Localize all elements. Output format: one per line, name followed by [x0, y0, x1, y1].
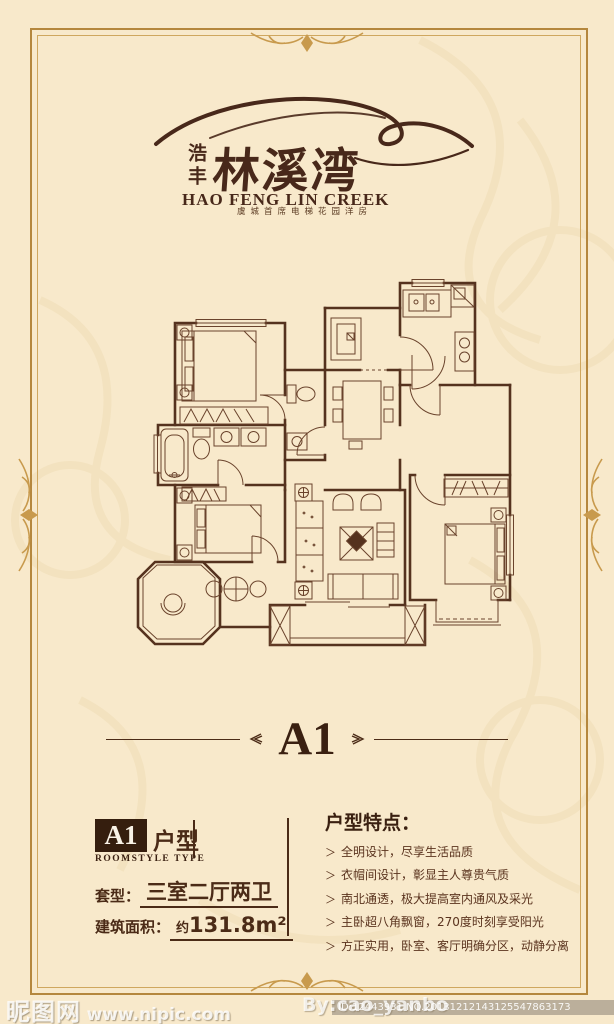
feature-item: ＞南北通透，极大提高室内通风及采光: [325, 892, 575, 906]
feature-marker: ＞: [325, 940, 336, 953]
unit-badge: A1: [95, 819, 147, 852]
feature-text: 衣帽间设计，彰显主人尊贵气质: [341, 868, 509, 882]
plan-title: A1: [278, 716, 335, 763]
feature-item: ＞衣帽间设计，彰显主人尊贵气质: [325, 868, 575, 882]
info-column-divider: [287, 818, 289, 936]
heading-rule-left: [106, 739, 240, 740]
heading-fleur-left: [247, 732, 263, 746]
logo-seal-vertical-text: 浩丰: [186, 143, 210, 189]
unit-area-approx: 约: [176, 921, 189, 936]
watermark-site-name: 昵图网: [6, 998, 81, 1024]
plan-furniture: [161, 285, 508, 645]
unit-type-row: 套型：三室二厅两卫: [95, 876, 278, 906]
unit-area-number: 131.8m²: [189, 913, 287, 937]
poster: 浩丰 林溪湾 HAO FENG LIN CREEK 虞城首席电梯花园洋房: [0, 0, 614, 1024]
feature-item: ＞主卧超八角飘窗，270度时刻享受阳光: [325, 915, 575, 929]
heading-fleur-right: [351, 732, 367, 746]
feature-text: 南北通透，极大提高室内通风及采光: [341, 892, 533, 906]
feature-marker: ＞: [325, 916, 336, 929]
plan-heading: A1: [106, 710, 508, 768]
brand-tagline: 虞城首席电梯花园洋房: [237, 205, 372, 217]
feature-marker: ＞: [325, 869, 336, 882]
watermark-id-text: ID:12443931 NO.20131212143125547863173: [338, 1002, 571, 1013]
unit-badge-subtitle: ROOMSTYLE TYPE: [95, 854, 205, 864]
floor-plan-drawing: [100, 275, 518, 687]
unit-area-value: 约131.8m²: [170, 913, 293, 941]
unit-area-label: 建筑面积：: [95, 918, 170, 936]
feature-item: ＞方正实用，卧室、客厅明确分区，动静分离: [325, 939, 575, 953]
watermark-site-url: www.nipic.com: [87, 1005, 231, 1024]
unit-type-value: 三室二厅两卫: [140, 880, 278, 908]
heading-rule-right: [374, 739, 508, 740]
watermark-site: 昵图网 www.nipic.com: [6, 992, 231, 1024]
feature-marker: ＞: [325, 846, 336, 859]
feature-marker: ＞: [325, 893, 336, 906]
feature-item: ＞全明设计，尽享生活品质: [325, 845, 575, 859]
features-title: 户型特点：: [325, 808, 575, 835]
features-block: 户型特点： ＞全明设计，尽享生活品质 ＞衣帽间设计，彰显主人尊贵气质 ＞南北通透…: [325, 808, 575, 962]
unit-area-row: 建筑面积：约131.8m²: [95, 913, 293, 937]
feature-text: 主卧超八角飘窗，270度时刻享受阳光: [341, 915, 544, 929]
feature-text: 全明设计，尽享生活品质: [341, 845, 473, 859]
badge-divider-tick: [193, 820, 195, 858]
feature-text: 方正实用，卧室、客厅明确分区，动静分离: [341, 939, 569, 953]
unit-type-label: 套型：: [95, 887, 140, 905]
